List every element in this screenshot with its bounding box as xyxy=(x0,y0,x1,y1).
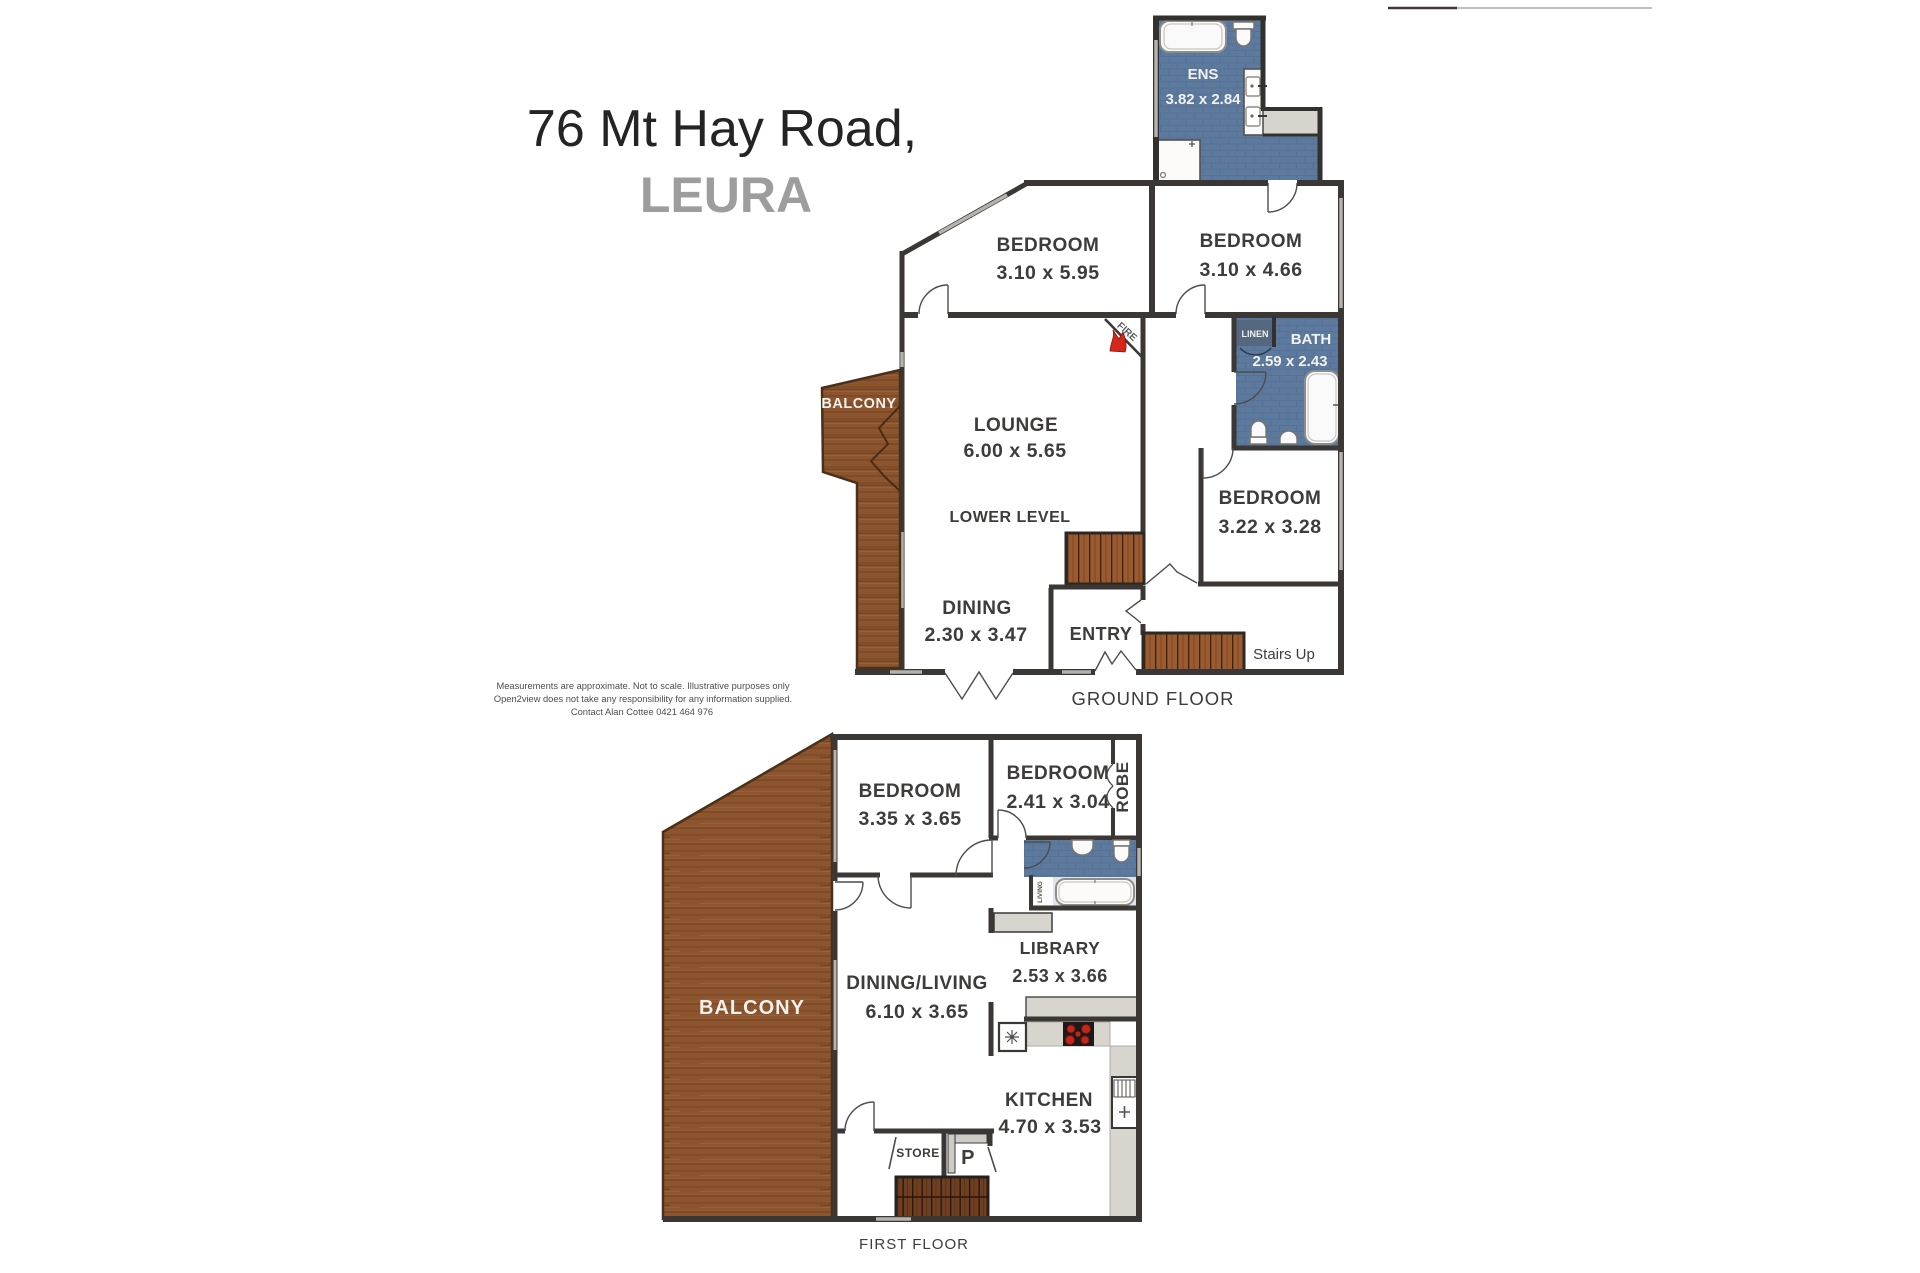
svg-text:BATH: BATH xyxy=(1291,331,1332,348)
svg-text:BEDROOM: BEDROOM xyxy=(859,781,962,802)
svg-text:DINING: DINING xyxy=(942,598,1012,619)
svg-text:Measurements are approximate.: Measurements are approximate. Not to sca… xyxy=(497,681,790,691)
svg-text:BEDROOM: BEDROOM xyxy=(1200,231,1303,252)
svg-text:ENS: ENS xyxy=(1188,66,1219,83)
svg-text:BEDROOM: BEDROOM xyxy=(997,235,1100,256)
svg-text:4.70 x 3.53: 4.70 x 3.53 xyxy=(998,1116,1101,1138)
svg-text:LOUNGE: LOUNGE xyxy=(974,415,1058,436)
svg-text:LIBRARY: LIBRARY xyxy=(1020,938,1101,958)
svg-text:STORE: STORE xyxy=(896,1146,940,1160)
svg-text:LIVING: LIVING xyxy=(1037,881,1044,903)
svg-text:3.82 x 2.84: 3.82 x 2.84 xyxy=(1165,91,1241,108)
svg-text:3.10 x 5.95: 3.10 x 5.95 xyxy=(996,262,1099,284)
svg-text:3.10 x 4.66: 3.10 x 4.66 xyxy=(1199,259,1302,281)
svg-text:2.59 x 2.43: 2.59 x 2.43 xyxy=(1252,353,1327,370)
svg-text:Open2view does not take any re: Open2view does not take any responsibili… xyxy=(494,694,792,704)
svg-text:2.53 x 3.66: 2.53 x 3.66 xyxy=(1012,966,1108,986)
svg-text:Contact Alan Cottee 0421 464 9: Contact Alan Cottee 0421 464 976 xyxy=(571,707,713,717)
svg-text:BEDROOM: BEDROOM xyxy=(1007,763,1110,784)
svg-text:BALCONY: BALCONY xyxy=(821,396,896,412)
svg-text:6.00 x 5.65: 6.00 x 5.65 xyxy=(963,440,1066,462)
svg-text:BEDROOM: BEDROOM xyxy=(1219,488,1322,509)
svg-text:DINING/LIVING: DINING/LIVING xyxy=(846,973,988,994)
svg-text:GROUND FLOOR: GROUND FLOOR xyxy=(1071,688,1234,709)
svg-text:LINEN: LINEN xyxy=(1242,329,1269,339)
svg-text:2.30 x 3.47: 2.30 x 3.47 xyxy=(924,624,1027,646)
svg-text:Stairs Up: Stairs Up xyxy=(1253,646,1315,663)
svg-text:LEURA: LEURA xyxy=(640,167,812,223)
svg-text:FIRST FLOOR: FIRST FLOOR xyxy=(859,1236,969,1253)
svg-text:3.22 x 3.28: 3.22 x 3.28 xyxy=(1218,516,1321,538)
svg-text:KITCHEN: KITCHEN xyxy=(1005,1090,1093,1111)
svg-text:2.41 x 3.04: 2.41 x 3.04 xyxy=(1006,791,1109,813)
svg-text:6.10 x 3.65: 6.10 x 3.65 xyxy=(865,1001,968,1023)
svg-text:BALCONY: BALCONY xyxy=(699,997,805,1019)
svg-text:ENTRY: ENTRY xyxy=(1070,624,1133,644)
svg-text:3.35 x 3.65: 3.35 x 3.65 xyxy=(858,808,961,830)
svg-text:76 Mt Hay Road,: 76 Mt Hay Road, xyxy=(527,100,917,158)
svg-text:ROBE: ROBE xyxy=(1113,761,1132,812)
svg-text:P: P xyxy=(961,1147,975,1169)
svg-text:LOWER LEVEL: LOWER LEVEL xyxy=(949,509,1070,526)
